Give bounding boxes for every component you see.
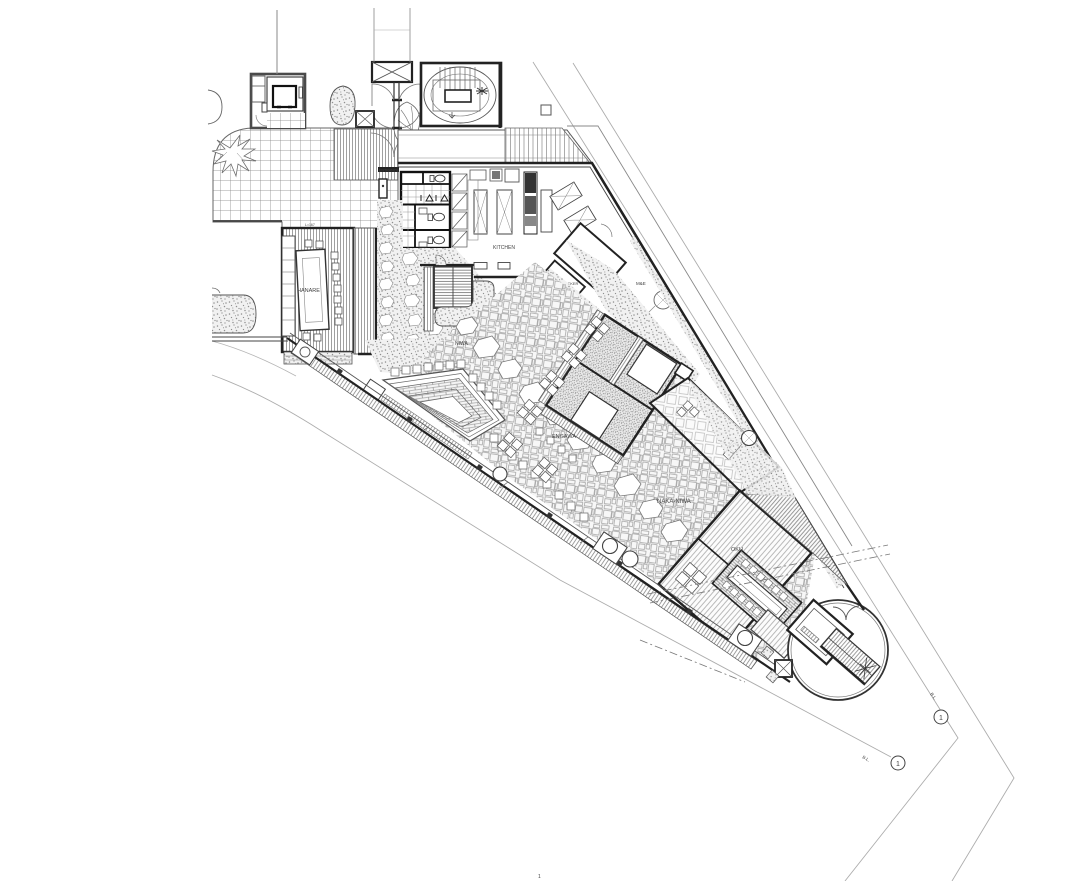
svg-text:L=167: L=167 (305, 223, 315, 227)
svg-text:M&E: M&E (636, 281, 646, 286)
svg-text:NIWA: NIWA (455, 341, 469, 347)
svg-text:ENGAWA: ENGAWA (552, 434, 576, 440)
svg-text:1: 1 (538, 874, 541, 880)
svg-text:ENTRANCE: ENTRANCE (379, 169, 399, 173)
svg-text:HANARE: HANARE (297, 288, 320, 294)
svg-text:1: 1 (896, 761, 900, 768)
svg-text:KITCHEN: KITCHEN (493, 245, 515, 251)
svg-text:OKU: OKU (731, 547, 743, 553)
svg-text:NAKA-NIWA: NAKA-NIWA (657, 499, 691, 505)
svg-text:1: 1 (939, 715, 943, 722)
